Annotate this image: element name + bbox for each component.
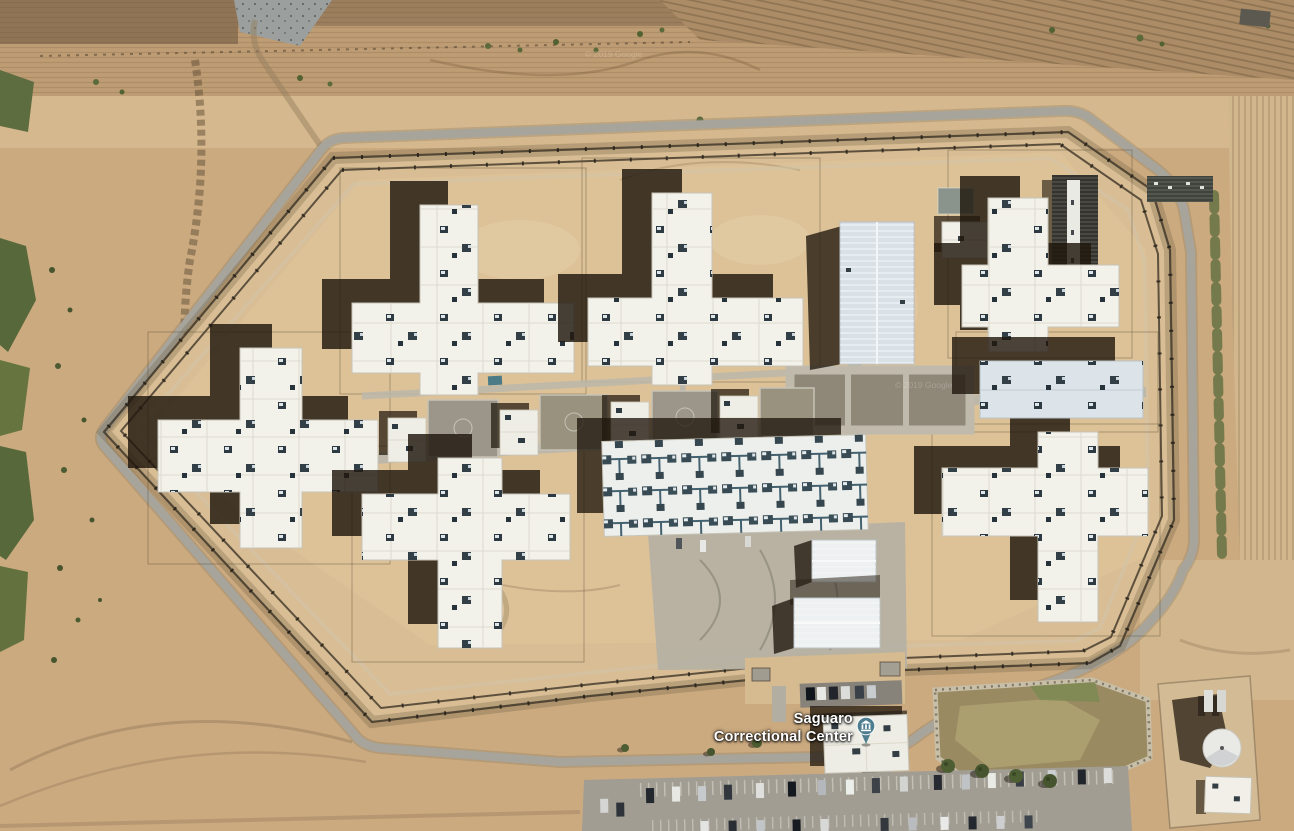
satellite-imagery: © 2019 Google © 2019 Google (0, 0, 1294, 831)
gymnasium (806, 222, 914, 370)
utility-building-ne (1147, 176, 1213, 202)
outbuilding-northeast (1239, 8, 1271, 27)
water-feature (488, 376, 502, 386)
poi-label-line2: Correctional Center (714, 728, 853, 746)
satellite-map-viewport[interactable]: © 2019 Google © 2019 Google Saguaro Corr… (0, 0, 1294, 831)
poi-pin[interactable] (855, 716, 877, 748)
water-tank-area (1158, 676, 1260, 828)
watermark-text: © 2019 Google (895, 380, 953, 390)
poi-label[interactable]: Saguaro Correctional Center (714, 710, 853, 746)
watermark-text: © 2019 Google (585, 49, 643, 59)
sally-port (800, 680, 903, 708)
housing-unit-east (952, 337, 1143, 418)
poi-label-line1: Saguaro (714, 710, 853, 728)
warehouse-south-2 (772, 598, 880, 654)
